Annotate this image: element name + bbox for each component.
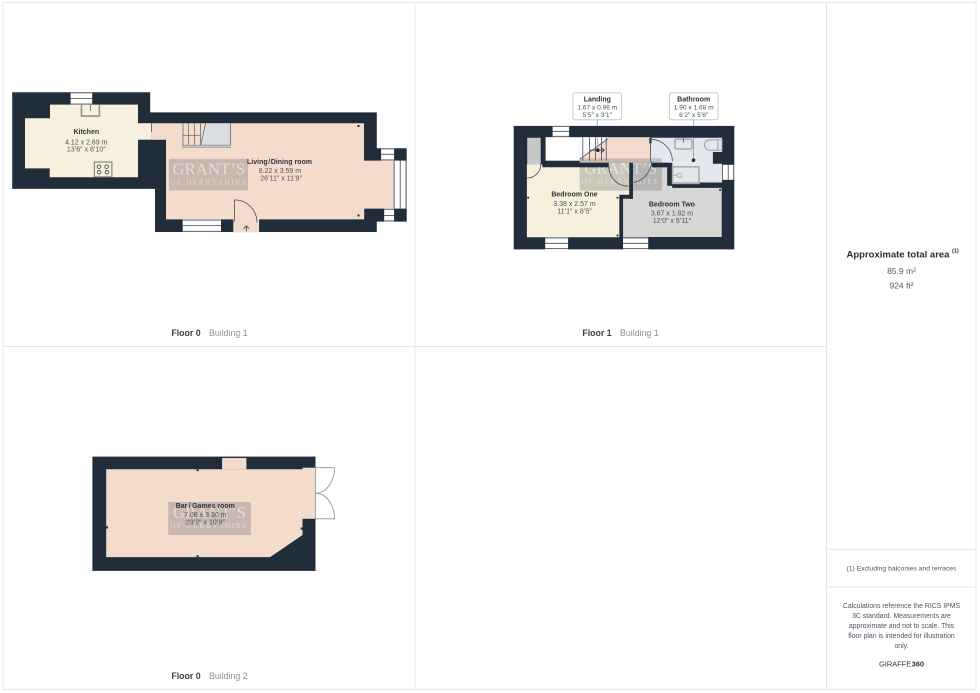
svg-text:1.90 x 1.68 m: 1.90 x 1.68 m <box>674 105 714 112</box>
svg-text:Landing: Landing <box>584 96 611 103</box>
svg-text:Kitchen: Kitchen <box>73 129 99 136</box>
svg-text:Floor 0Building 1: Floor 0Building 1 <box>171 328 247 338</box>
svg-text:Approximate total area: Approximate total area <box>847 250 951 261</box>
svg-text:Floor 0Building 2: Floor 0Building 2 <box>171 671 247 681</box>
svg-text:approximate and not to scale.: approximate and not to scale. This <box>849 623 955 630</box>
svg-text:Living / Dining room: Living / Dining room <box>247 159 312 166</box>
svg-text:924 ft²: 924 ft² <box>889 281 913 291</box>
svg-text:12’0″ x 5’11″: 12’0″ x 5’11″ <box>653 218 692 225</box>
svg-text:5’5″ x 3’1″: 5’5″ x 3’1″ <box>583 112 613 119</box>
svg-text:Bedroom Two: Bedroom Two <box>649 201 695 208</box>
svg-text:Bedroom One: Bedroom One <box>551 191 597 198</box>
svg-text:13’6″ x 8’10″: 13’6″ x 8’10″ <box>67 147 106 154</box>
svg-text:(1) Excluding balconies and te: (1) Excluding balconies and terraces <box>847 566 958 573</box>
svg-text:3.38 x 2.57 m: 3.38 x 2.57 m <box>553 201 596 208</box>
svg-text:23’2″ x 10’9″: 23’2″ x 10’9″ <box>186 519 225 526</box>
svg-text:floor plan is intended for ill: floor plan is intended for illustration <box>848 633 955 640</box>
svg-text:6’2″ x 5’6″: 6’2″ x 5’6″ <box>679 112 709 119</box>
svg-text:3C standard. Measurements are: 3C standard. Measurements are <box>852 613 951 620</box>
svg-text:85.9 m²: 85.9 m² <box>887 266 916 276</box>
svg-text:26’11″ x 11’9″: 26’11″ x 11’9″ <box>260 176 302 183</box>
svg-text:7.08 x 3.30 m: 7.08 x 3.30 m <box>184 512 227 519</box>
svg-text:GRANT’S: GRANT’S <box>173 160 246 179</box>
svg-text:1.67 x 0.96 m: 1.67 x 0.96 m <box>577 105 617 112</box>
svg-text:11’1″ x 8’5″: 11’1″ x 8’5″ <box>557 208 592 215</box>
svg-text:Bathroom: Bathroom <box>677 96 710 103</box>
svg-text:(1): (1) <box>952 249 959 255</box>
svg-text:only.: only. <box>894 643 908 650</box>
svg-text:Calculations reference the RIC: Calculations reference the RICS IPMS <box>843 603 961 610</box>
svg-text:3.67 x 1.82 m: 3.67 x 1.82 m <box>651 211 694 218</box>
svg-text:GIRAFFE360: GIRAFFE360 <box>879 660 924 669</box>
svg-text:Bar / Games room: Bar / Games room <box>176 503 235 510</box>
svg-text:OF DERBYSHIRE: OF DERBYSHIRE <box>170 178 248 186</box>
svg-text:4.12 x 2.69 m: 4.12 x 2.69 m <box>65 139 108 146</box>
svg-text:Floor 1Building 1: Floor 1Building 1 <box>582 328 658 338</box>
svg-text:8.22 x 3.59 m: 8.22 x 3.59 m <box>259 168 302 175</box>
